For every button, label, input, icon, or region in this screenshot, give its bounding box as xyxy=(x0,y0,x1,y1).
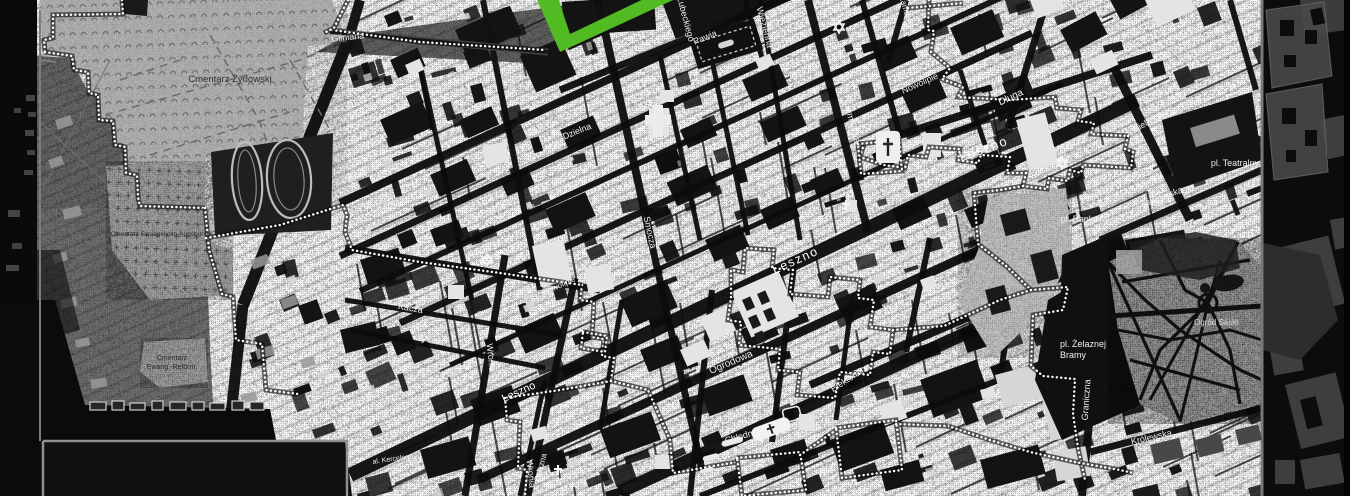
svg-text:Cmentarz Żydowski: Cmentarz Żydowski xyxy=(188,74,271,85)
svg-text:Ogród Saski: Ogród Saski xyxy=(1194,318,1238,327)
svg-text:pl. Bankowy: pl. Bankowy xyxy=(1061,214,1110,224)
svg-text:Cmentarz Ewangelicko-Augsbursk: Cmentarz Ewangelicko-Augsburski xyxy=(111,231,212,238)
svg-text:pl. Teatralny: pl. Teatralny xyxy=(1211,158,1260,168)
